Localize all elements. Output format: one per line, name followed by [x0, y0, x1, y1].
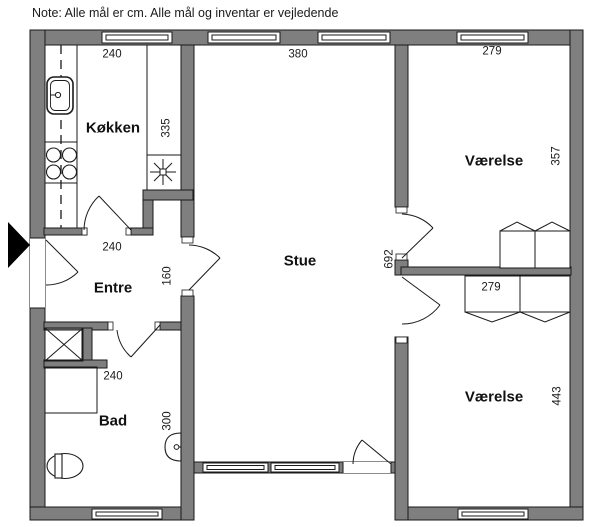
room-label-stue: Stue [284, 254, 317, 269]
room-label-bad: Bad [99, 414, 127, 429]
dim-vaerelse-top-width: 279 [482, 46, 501, 58]
dim-entre-width: 240 [102, 242, 121, 254]
dim-bad-depth: 300 [162, 411, 174, 430]
window-koekken [102, 32, 172, 43]
dim-koekken-depth: 335 [161, 118, 173, 137]
wall-end-caps [82, 207, 407, 343]
floor-plan: Note: Alle mål er cm. Alle mål og invent… [0, 0, 600, 527]
window-stue-top-1 [208, 32, 280, 43]
dim-vaerelse-top-depth: 357 [551, 146, 563, 165]
dim-stue-width: 380 [288, 49, 307, 61]
dim-stue-depth: 692 [384, 249, 396, 268]
balcony-door [343, 440, 391, 473]
window-bad [92, 509, 162, 519]
dim-entre-opening: 160 [162, 266, 174, 285]
dim-bad-width: 240 [103, 371, 122, 383]
entrance-door [30, 238, 78, 308]
wall-divider-right-upper [395, 45, 408, 207]
wall-divider-left-upper [181, 45, 194, 237]
vaerelse-top-door [402, 214, 433, 258]
hand-basin-icon [165, 433, 181, 461]
shower-icon [45, 328, 83, 361]
wall-koekken-entre-b [131, 228, 153, 235]
plan-note: Note: Alle mål er cm. Alle mål og invent… [32, 6, 338, 20]
wall-entre-bad-b [160, 322, 181, 330]
toilet-icon [47, 454, 83, 479]
vaerelse-bottom-door [402, 277, 440, 324]
room-label-vaerelse-top: Værelse [465, 154, 523, 169]
window-stue-bottom-2 [271, 463, 339, 472]
extractor-fan-icon [150, 159, 176, 185]
entre-stue-door [189, 245, 220, 290]
dim-vaerelse-bottom-width: 279 [481, 282, 500, 294]
dim-vaerelse-bottom-depth: 443 [552, 386, 564, 405]
wall-entre-bad-a [44, 322, 108, 330]
wall-right [570, 30, 583, 520]
room-label-entre: Entre [94, 281, 132, 296]
washing-machine-icon [45, 367, 97, 413]
window-stue-top-2 [318, 32, 390, 43]
dim-koekken-width: 240 [102, 49, 121, 61]
bad-door [117, 325, 160, 357]
room-label-vaerelse-bottom: Værelse [465, 390, 523, 405]
window-stue-bottom-1 [203, 463, 268, 472]
wall-koekken-stub [143, 190, 193, 200]
wall-koekken-entre-a [44, 228, 87, 235]
room-label-koekken: Køkken [86, 121, 140, 136]
koekken-door [84, 196, 131, 230]
entrance-arrow-icon [8, 222, 30, 268]
wall-divider-right-lower [395, 337, 408, 520]
window-vaerelse-top [457, 32, 528, 43]
wall-koekken-jamb [143, 200, 153, 228]
wardrobe-top-icon [500, 222, 570, 268]
window-vaerelse-bottom [458, 509, 528, 519]
wall-divider-left-lower [181, 296, 194, 520]
kitchen-sink-icon [47, 77, 73, 114]
